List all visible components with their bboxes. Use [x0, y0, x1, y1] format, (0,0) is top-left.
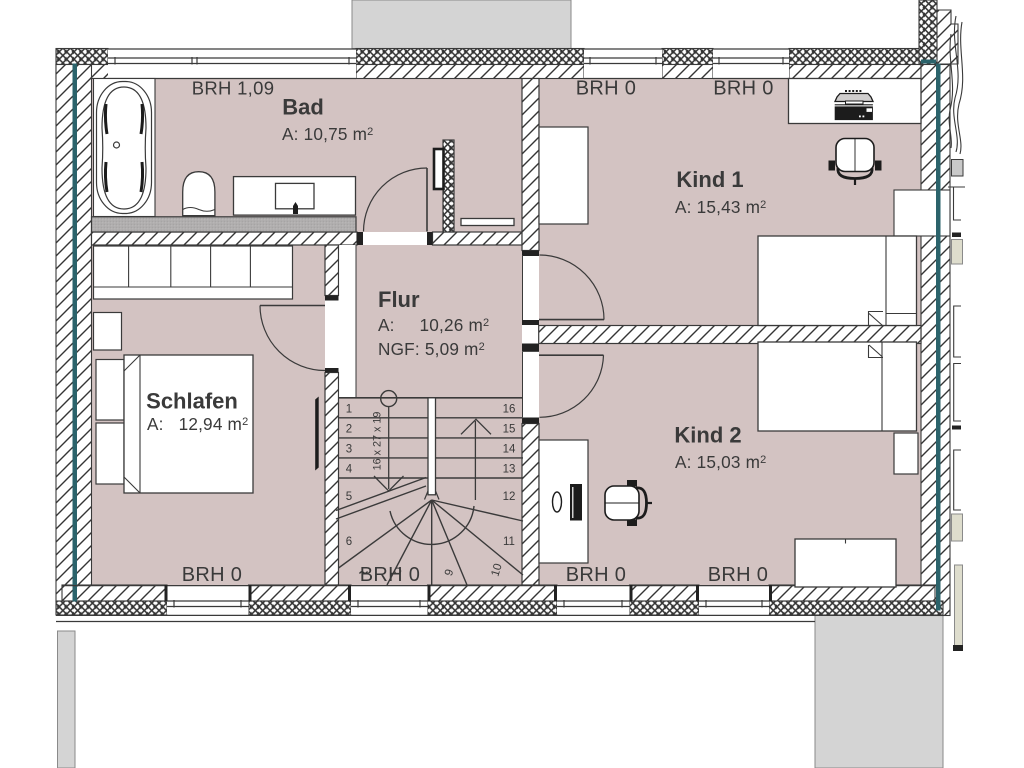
- svg-text:4: 4: [346, 464, 353, 476]
- svg-text:A: 10,26 m2: A: 10,26 m2: [378, 315, 489, 335]
- svg-text:2: 2: [346, 424, 352, 436]
- svg-text:BRH 1,09: BRH 1,09: [192, 78, 275, 99]
- svg-text:BRH 0: BRH 0: [576, 78, 636, 100]
- svg-text:16: 16: [503, 404, 516, 416]
- svg-text:Bad: Bad: [282, 95, 324, 120]
- svg-text:A: 12,94 m2: A: 12,94 m2: [147, 414, 248, 434]
- svg-text:Schlafen: Schlafen: [146, 389, 238, 414]
- svg-text:5: 5: [346, 491, 352, 503]
- svg-text:6: 6: [346, 536, 352, 548]
- svg-text:BRH 0: BRH 0: [708, 564, 768, 586]
- svg-text:Flur: Flur: [378, 287, 420, 312]
- svg-text:1: 1: [346, 404, 352, 416]
- svg-text:A: 15,03 m2: A: 15,03 m2: [675, 452, 766, 472]
- svg-text:A: 15,43 m2: A: 15,43 m2: [675, 197, 766, 217]
- svg-text:A: 10,75 m2: A: 10,75 m2: [282, 124, 373, 144]
- svg-text:11: 11: [503, 536, 515, 548]
- svg-text:13: 13: [503, 464, 516, 476]
- svg-text:Kind 1: Kind 1: [676, 167, 743, 192]
- svg-text:BRH 0: BRH 0: [566, 564, 626, 586]
- svg-text:BRH 0: BRH 0: [360, 564, 420, 586]
- svg-text:NGF: 5,09 m2: NGF: 5,09 m2: [378, 339, 485, 359]
- svg-text:16 x 27 x 19: 16 x 27 x 19: [372, 412, 384, 471]
- svg-text:14: 14: [503, 444, 516, 456]
- svg-text:3: 3: [346, 444, 352, 456]
- svg-text:BRH 0: BRH 0: [182, 564, 242, 586]
- svg-text:BRH 0: BRH 0: [713, 78, 773, 100]
- svg-text:15: 15: [503, 424, 516, 436]
- svg-text:Kind 2: Kind 2: [674, 423, 741, 448]
- svg-text:12: 12: [503, 491, 516, 503]
